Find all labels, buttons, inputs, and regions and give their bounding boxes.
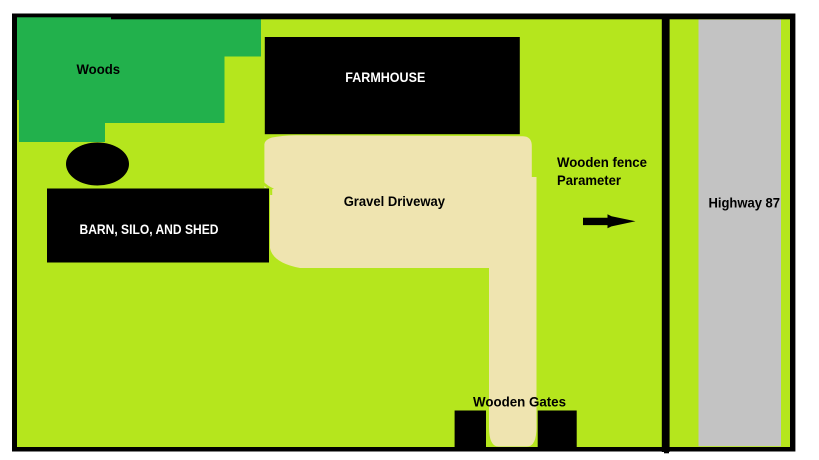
svg-text:BARN, SILO, AND SHED: BARN, SILO, AND SHED <box>80 221 219 237</box>
svg-text:Gravel Driveway: Gravel Driveway <box>344 193 445 209</box>
svg-text:Parameter: Parameter <box>557 172 622 188</box>
svg-text:FARMHOUSE: FARMHOUSE <box>345 69 425 85</box>
svg-text:Woods: Woods <box>77 61 121 77</box>
svg-text:Highway 87: Highway 87 <box>709 195 781 211</box>
svg-text:Wooden fence: Wooden fence <box>557 154 647 170</box>
svg-text:Wooden Gates: Wooden Gates <box>473 394 566 410</box>
